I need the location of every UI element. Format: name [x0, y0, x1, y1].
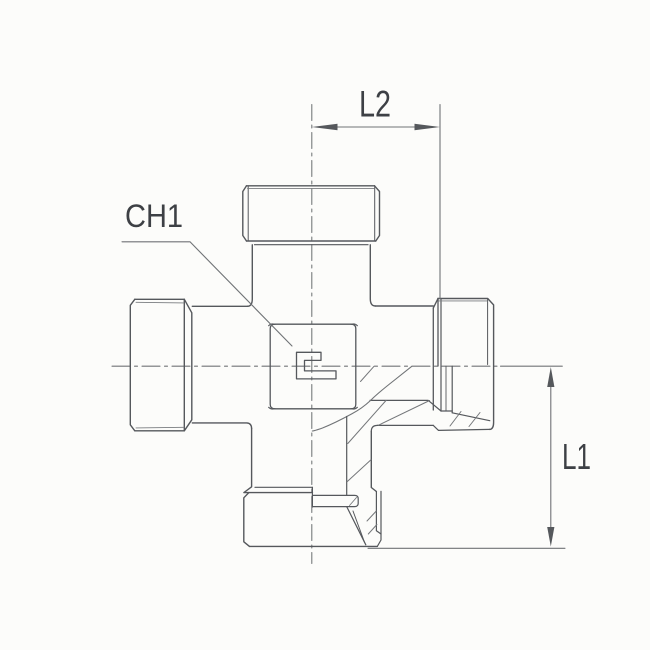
svg-text:L2: L2 [359, 83, 391, 124]
svg-text:L1: L1 [562, 436, 591, 477]
svg-text:CH1: CH1 [125, 198, 183, 234]
